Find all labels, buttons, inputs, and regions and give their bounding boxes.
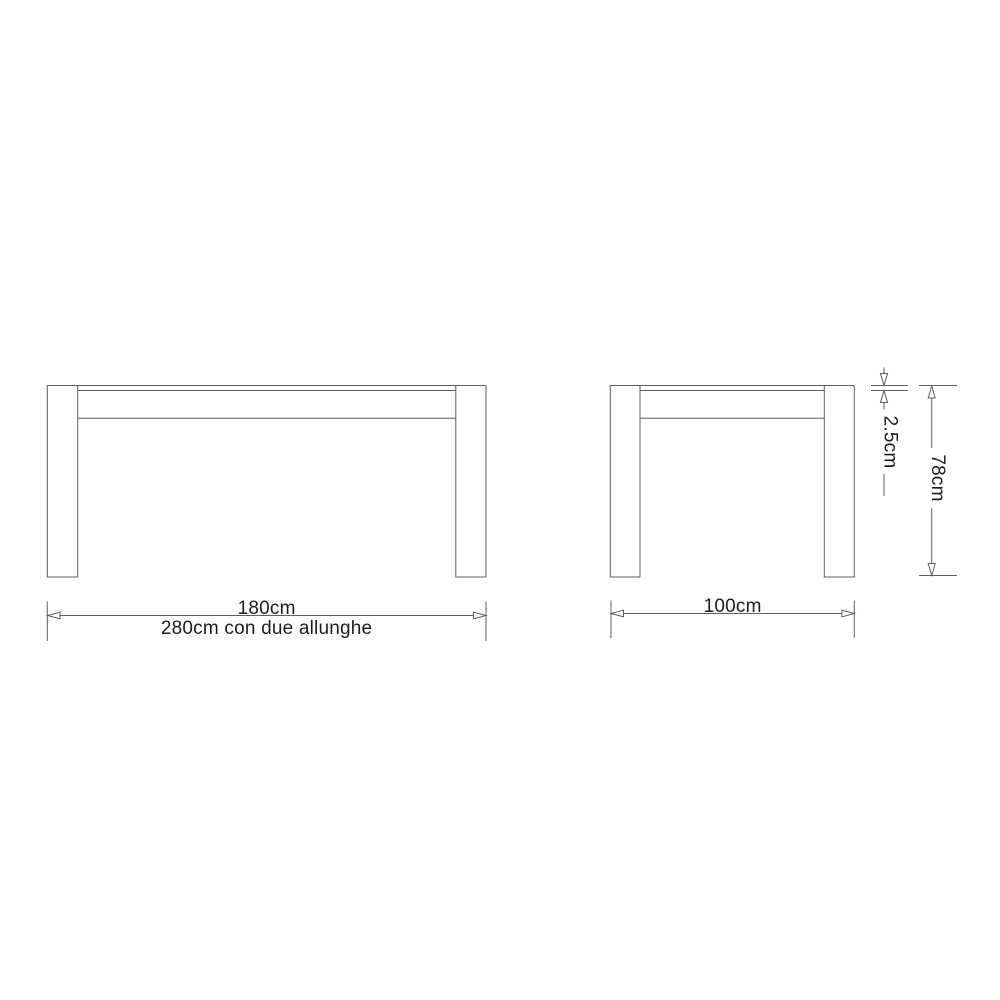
height-dimension: 78cm [919,386,957,576]
front-width-arrow-right-icon [474,612,487,619]
front-width-arrow-left-icon [48,612,61,619]
front-left-leg [47,386,77,578]
side-width-label: 100cm [704,596,762,617]
front-right-leg [456,386,486,578]
front-width-dimension: 180cm 280cm con due allunghe [47,598,486,641]
front-width-label: 180cm [238,598,296,619]
thickness-arrow-up-icon [881,391,888,403]
side-width-arrow-right-icon [842,610,855,617]
side-left-leg [610,386,640,578]
top-thickness-dimension: 2.5cm [871,368,908,497]
side-width-arrow-left-icon [611,610,624,617]
front-extended-width-label: 280cm con due allunghe [161,618,372,639]
front-elevation-view [47,386,486,578]
side-width-dimension: 100cm [611,596,854,638]
top-thickness-label: 2.5cm [880,416,901,469]
height-label: 78cm [927,454,948,501]
height-arrow-down-icon [928,564,935,576]
height-arrow-up-icon [928,386,935,398]
drawing-canvas: 180cm 280cm con due allunghe 100cm 2.5cm [0,0,1000,1000]
thickness-arrow-down-icon [881,374,888,386]
side-right-leg [824,386,854,578]
side-elevation-view [610,386,854,578]
table-dimension-drawing: 180cm 280cm con due allunghe 100cm 2.5cm [0,0,1000,1000]
